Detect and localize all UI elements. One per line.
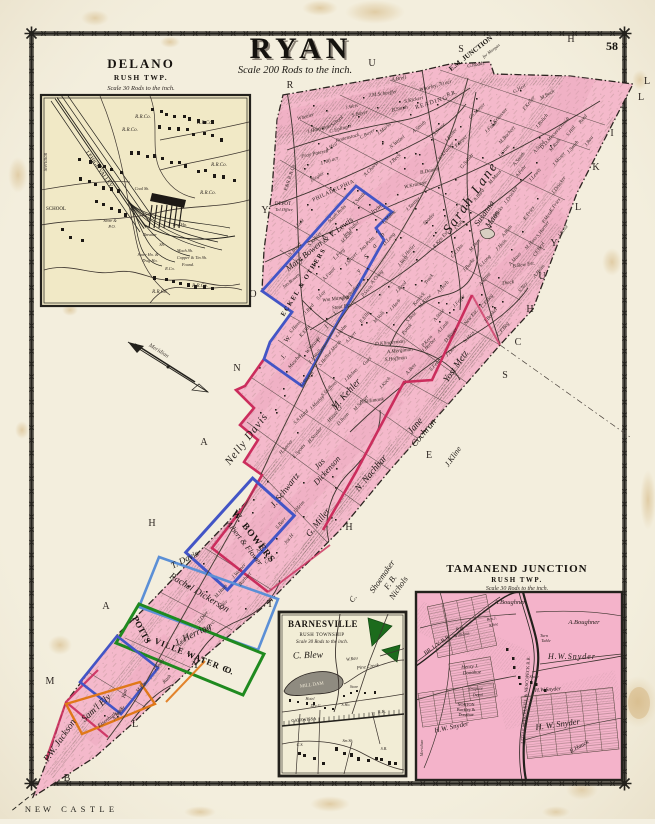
svg-text:H: H (148, 518, 155, 529)
svg-text:Store: Store (350, 684, 359, 689)
svg-text:E: E (109, 804, 114, 814)
svg-text:H: H (567, 34, 574, 45)
svg-text:L: L (99, 804, 104, 814)
svg-text:I: I (610, 128, 613, 139)
svg-text:Tel.Office: Tel.Office (275, 207, 292, 212)
svg-text:Meridian: Meridian (44, 152, 49, 172)
svg-text:R.R.Co.: R.R.Co. (151, 290, 168, 295)
svg-text:R.R.Co.: R.R.Co. (121, 128, 138, 133)
svg-text:U: U (368, 58, 376, 69)
svg-text:Store: Store (529, 674, 538, 679)
svg-text:L: L (575, 202, 581, 213)
svg-text:M: M (46, 676, 55, 687)
svg-text:Store Ho. &: Store Ho. & (138, 252, 159, 257)
svg-text:Sm.Sh.: Sm.Sh. (343, 738, 354, 743)
svg-text:R.R.Co.: R.R.Co. (199, 191, 216, 196)
svg-text:W: W (43, 804, 51, 814)
svg-text:Donahue: Donahue (458, 712, 473, 717)
svg-text:A.Boughner: A.Boughner (567, 619, 600, 626)
svg-text:S: S (502, 370, 508, 381)
svg-text:RUSH TWP.: RUSH TWP. (491, 576, 543, 584)
svg-text:T: T (90, 804, 96, 814)
svg-text:DELANO: DELANO (107, 56, 175, 71)
svg-text:R.R.Co.: R.R.Co. (191, 284, 208, 289)
svg-text:Y: Y (261, 205, 268, 216)
svg-text:Scale 30 Rods to the inch.: Scale 30 Rods to the inch. (296, 640, 348, 645)
svg-text:N: N (233, 363, 240, 374)
svg-text:Depot: Depot (472, 692, 484, 698)
svg-text:Mach.Sh.: Mach.Sh. (176, 248, 193, 253)
svg-text:R: R (287, 80, 294, 91)
svg-text:N: N (25, 804, 31, 814)
svg-text:H: H (526, 304, 533, 315)
svg-text:S.B.: S.B. (381, 746, 387, 751)
svg-text:K: K (592, 162, 600, 173)
svg-text:Y: Y (192, 660, 199, 671)
svg-text:B: B (64, 773, 71, 784)
svg-text:TAMANEND JUNCTION: TAMANEND JUNCTION (446, 563, 587, 575)
svg-text:RUSH TWP.: RUSH TWP. (114, 73, 168, 82)
svg-text:Copper & Tin Sh.: Copper & Tin Sh. (177, 255, 207, 260)
svg-text:Coal Sh.: Coal Sh. (135, 186, 150, 191)
svg-text:T: T (267, 599, 273, 610)
svg-text:C.S.: C.S. (297, 742, 304, 747)
svg-text:Meridian: Meridian (419, 739, 424, 757)
svg-text:Sh.: Sh. (159, 242, 164, 247)
svg-text:RYAN: RYAN (250, 32, 353, 65)
svg-text:E: E (426, 450, 432, 461)
svg-text:E: E (35, 804, 40, 814)
svg-text:L: L (132, 719, 138, 730)
svg-text:L: L (644, 76, 650, 87)
svg-text:BARNESVILLE: BARNESVILLE (288, 619, 358, 629)
svg-text:R.R.: R.R. (378, 709, 387, 715)
svg-text:R.R.Co.: R.R.Co. (196, 121, 213, 126)
svg-text:R.R.Co.: R.R.Co. (134, 115, 151, 120)
svg-text:58: 58 (606, 39, 618, 53)
svg-text:C. Blew: C. Blew (293, 650, 324, 661)
svg-text:Y: Y (550, 238, 557, 249)
svg-text:Breaker: Breaker (143, 232, 157, 237)
svg-text:Table: Table (541, 638, 550, 643)
svg-text:H: H (345, 522, 352, 533)
svg-text:S: S (81, 804, 86, 814)
svg-text:Found.: Found. (181, 262, 194, 267)
svg-text:RUSH TOWNSHIP: RUSH TOWNSHIP (299, 633, 344, 638)
svg-text:Scale 30 Rods to the inch.: Scale 30 Rods to the inch. (107, 85, 175, 92)
svg-text:C: C (61, 804, 67, 814)
svg-text:R.R.Co.: R.R.Co. (210, 163, 227, 168)
svg-text:R.Co.: R.Co. (164, 266, 175, 271)
svg-text:S.Ho.: S.Ho. (342, 702, 351, 707)
svg-text:L: L (638, 92, 644, 103)
svg-text:A: A (102, 601, 110, 612)
svg-text:Dry G.: Dry G. (309, 703, 321, 708)
svg-text:C: C (515, 337, 522, 348)
svg-text:Propose: Propose (468, 686, 483, 692)
svg-text:SCHOOL: SCHOOL (46, 207, 66, 212)
svg-text:P.O.: P.O. (107, 224, 115, 229)
svg-text:A: A (70, 804, 77, 814)
svg-text:A.Boughner: A.Boughner (493, 599, 526, 606)
svg-text:Eng.Ho.: Eng.Ho. (172, 222, 187, 227)
svg-text:H.W.Snyder: H.W.Snyder (547, 652, 596, 661)
svg-text:Hotel: Hotel (305, 696, 316, 701)
svg-text:Store &: Store & (103, 218, 117, 223)
svg-text:Scale 200 Rods to the inch.: Scale 200 Rods to the inch. (238, 65, 352, 76)
svg-text:A: A (200, 437, 208, 448)
svg-text:U: U (538, 271, 546, 282)
svg-text:Dwg Ho.: Dwg Ho. (141, 258, 158, 263)
